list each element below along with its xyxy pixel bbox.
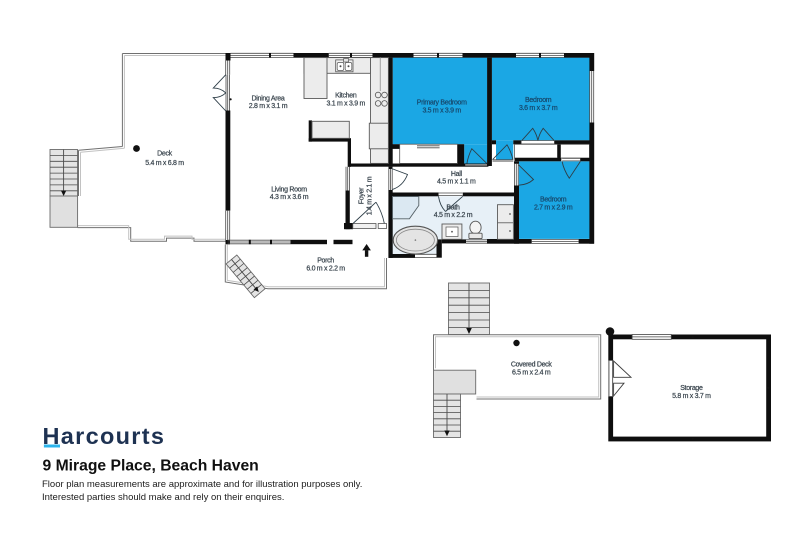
svg-text:Bath: Bath	[446, 204, 460, 211]
svg-text:Interested parties should make: Interested parties should make and rely …	[42, 492, 284, 503]
svg-text:5.8 m x 3.7 m: 5.8 m x 3.7 m	[672, 393, 711, 400]
svg-text:2.8 m x 3.1 m: 2.8 m x 3.1 m	[249, 103, 288, 110]
svg-text:Kitchen: Kitchen	[335, 92, 357, 99]
svg-text:4.5 m x 1.1 m: 4.5 m x 1.1 m	[437, 179, 476, 186]
svg-text:Hall: Hall	[451, 171, 463, 178]
svg-text:4.3 m x 3.6 m: 4.3 m x 3.6 m	[270, 194, 309, 201]
svg-text:Living Room: Living Room	[271, 186, 307, 193]
svg-text:6.0 m x 2.2 m: 6.0 m x 2.2 m	[306, 265, 345, 272]
svg-text:Harcourts: Harcourts	[43, 423, 166, 449]
svg-text:Floor plan measurements are ap: Floor plan measurements are approximate …	[42, 479, 362, 490]
svg-text:4.5 m x 2.2 m: 4.5 m x 2.2 m	[434, 212, 473, 219]
svg-text:Bedroom: Bedroom	[525, 97, 552, 104]
svg-text:Bedroom: Bedroom	[540, 196, 567, 203]
svg-text:Storage: Storage	[680, 385, 703, 392]
svg-text:2.7 m x 2.9 m: 2.7 m x 2.9 m	[534, 205, 573, 212]
svg-text:1.4 m x 2.1 m: 1.4 m x 2.1 m	[366, 176, 373, 215]
svg-text:6.5 m x 2.4 m: 6.5 m x 2.4 m	[512, 370, 551, 377]
svg-text:Deck: Deck	[157, 150, 173, 157]
svg-text:3.6 m x 3.7 m: 3.6 m x 3.7 m	[519, 105, 558, 112]
svg-text:9 Mirage Place, Beach Haven: 9 Mirage Place, Beach Haven	[43, 457, 259, 474]
svg-text:3.5 m x 3.9 m: 3.5 m x 3.9 m	[422, 108, 461, 115]
svg-text:Foyer: Foyer	[359, 187, 366, 204]
svg-text:Porch: Porch	[317, 258, 334, 265]
svg-text:3.1 m x 3.9 m: 3.1 m x 3.9 m	[327, 101, 366, 108]
svg-text:5.4 m x 6.8 m: 5.4 m x 6.8 m	[145, 160, 184, 167]
svg-text:Primary Bedroom: Primary Bedroom	[417, 100, 467, 107]
svg-text:Dining Area: Dining Area	[252, 95, 285, 102]
svg-text:Covered Deck: Covered Deck	[511, 362, 553, 369]
